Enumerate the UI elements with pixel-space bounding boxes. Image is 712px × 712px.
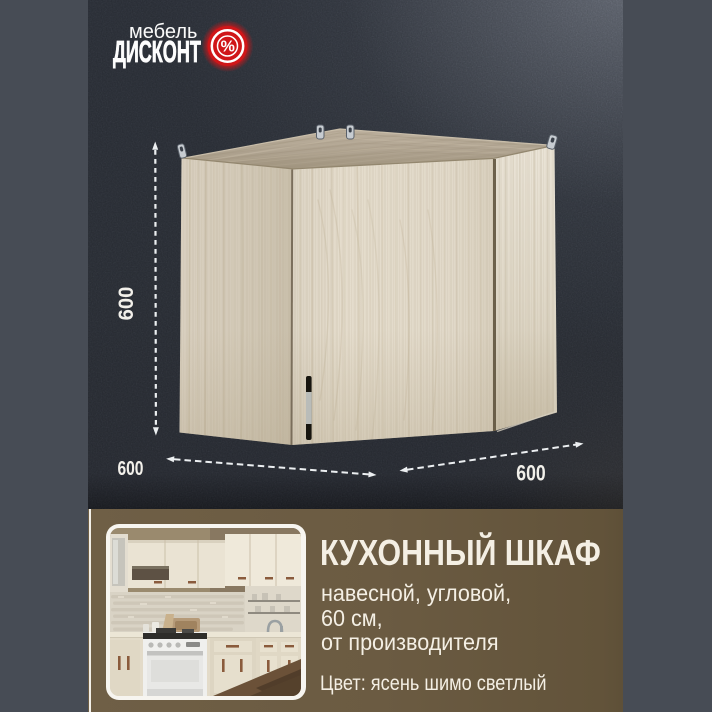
svg-text:600: 600 bbox=[118, 457, 144, 480]
svg-text:600: 600 bbox=[516, 462, 545, 486]
svg-text:600: 600 bbox=[114, 287, 138, 321]
svg-text:%: % bbox=[221, 39, 235, 56]
